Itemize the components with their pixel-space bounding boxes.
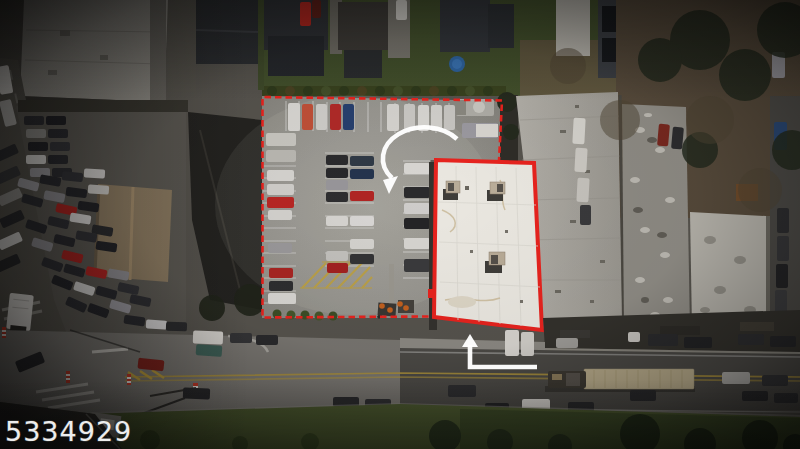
- aerial-photo: 5334929: [0, 0, 800, 449]
- mls-number-watermark: 5334929: [5, 416, 132, 447]
